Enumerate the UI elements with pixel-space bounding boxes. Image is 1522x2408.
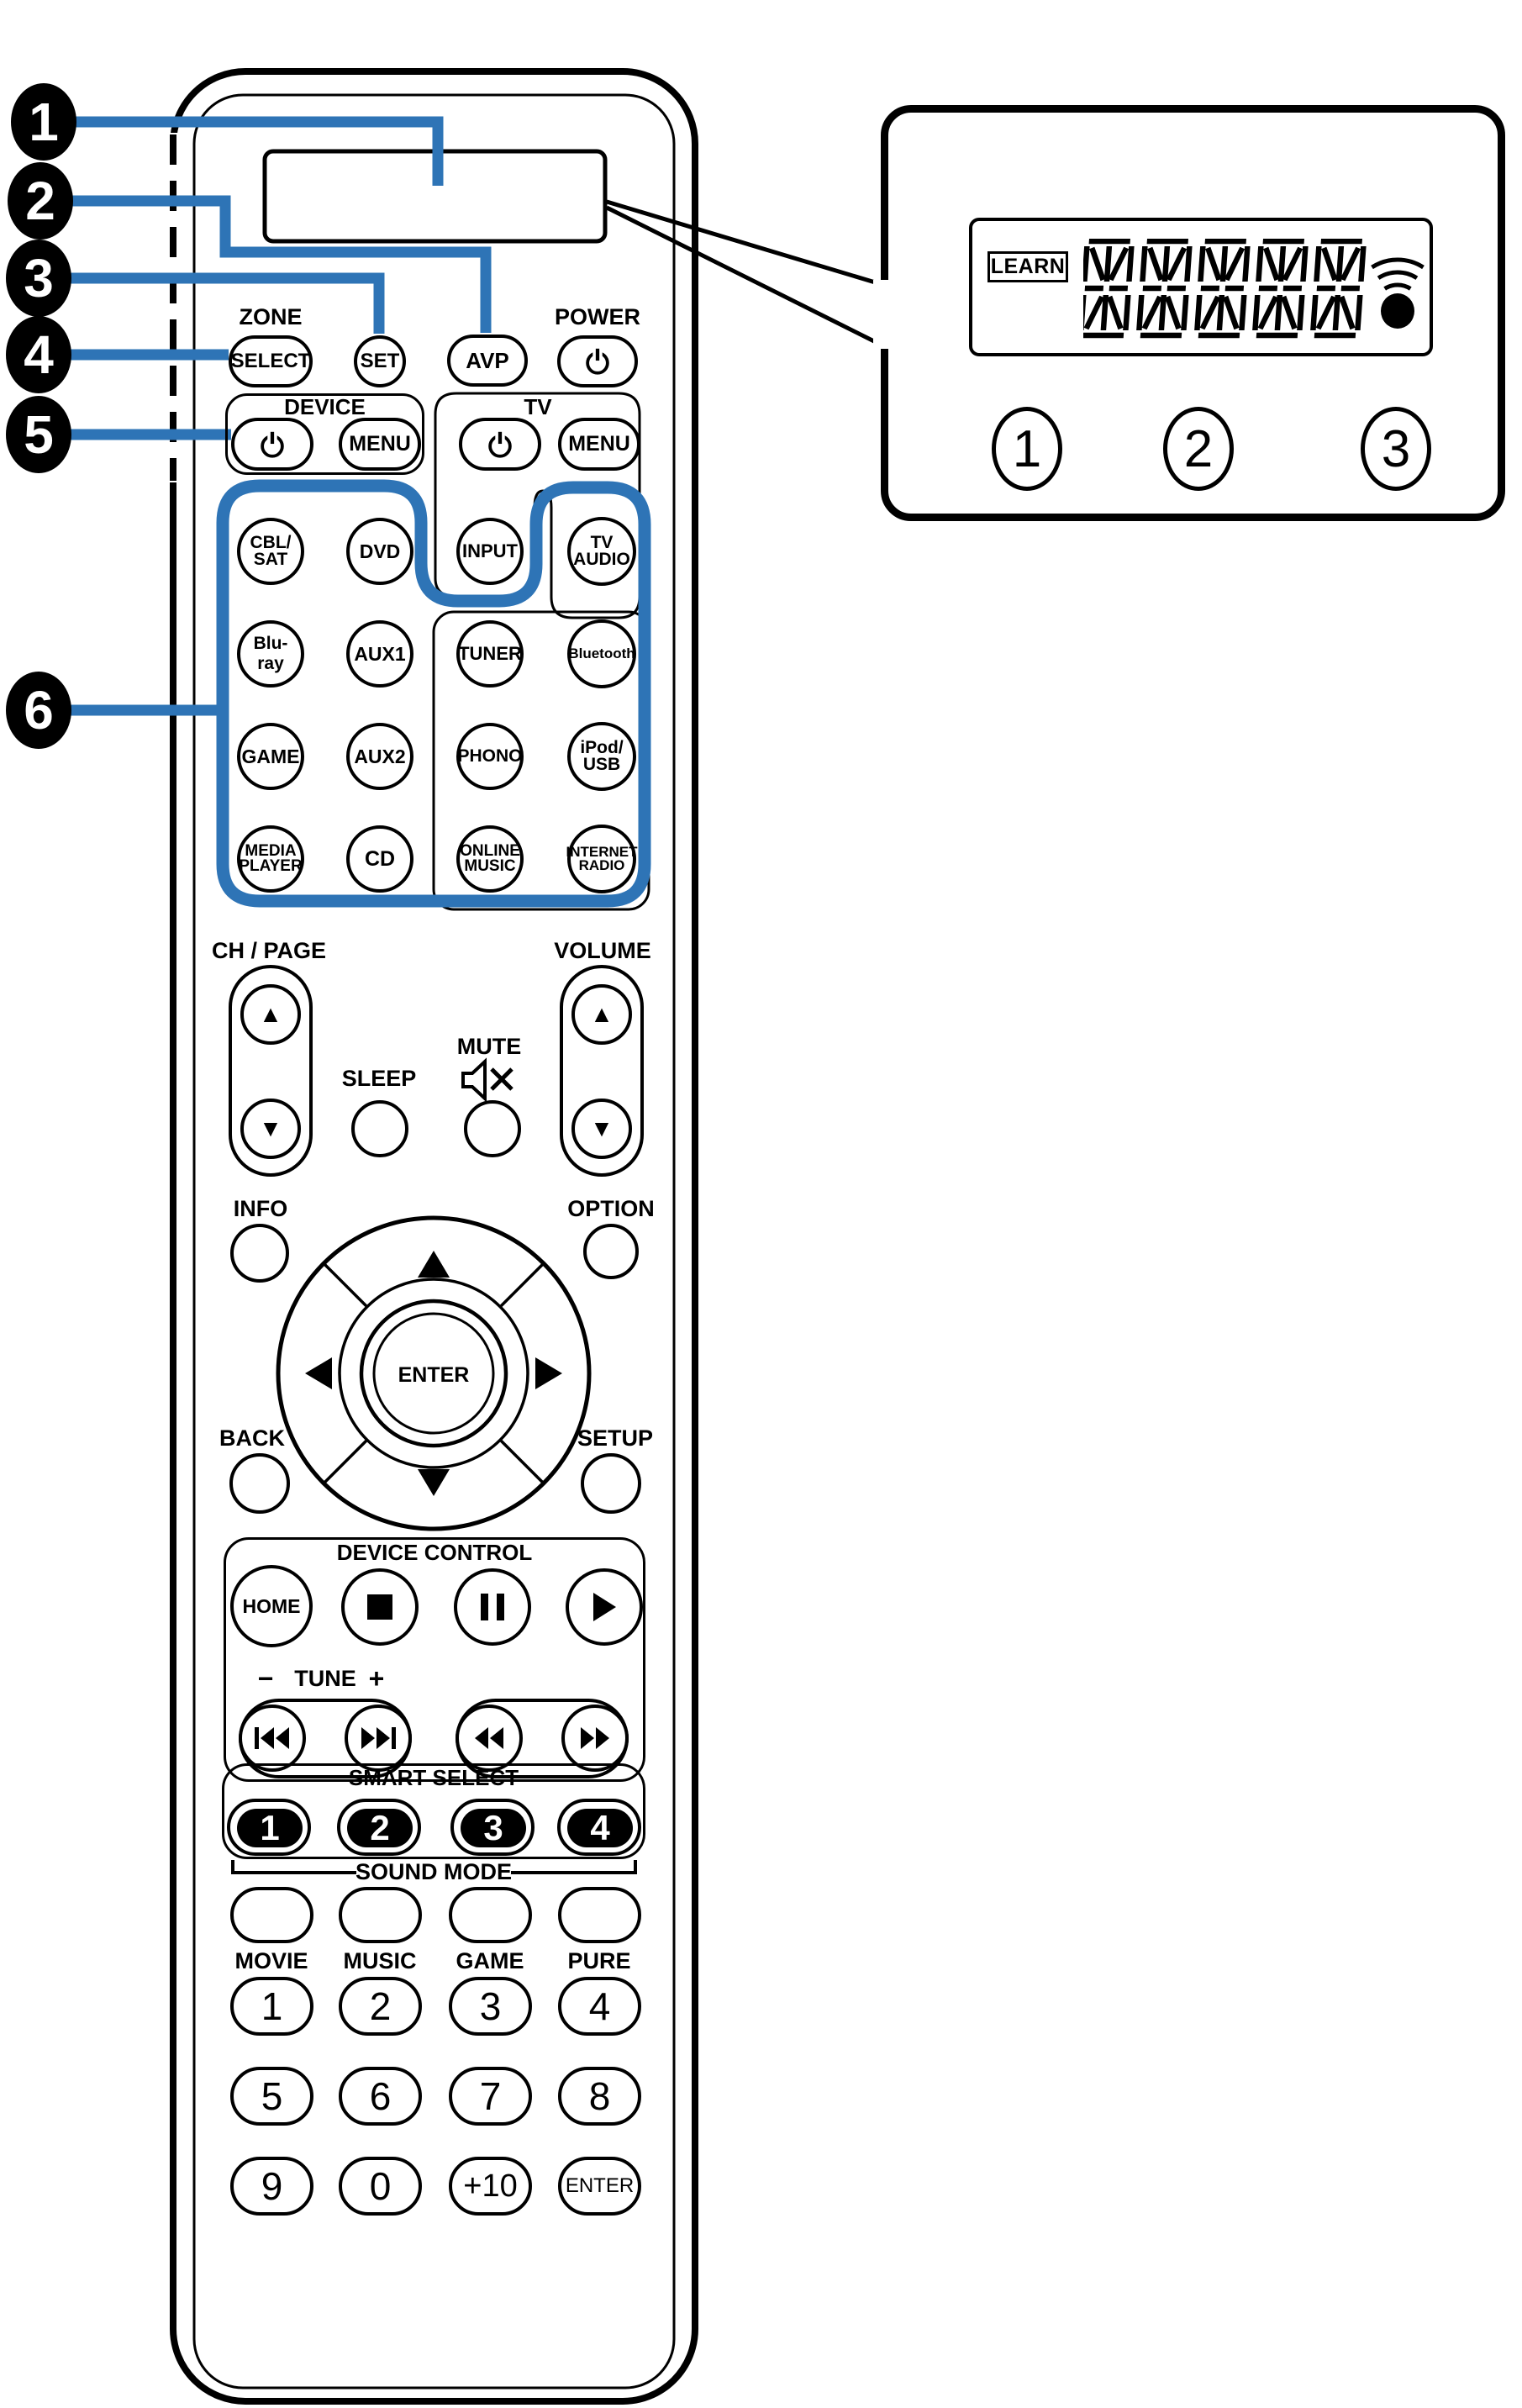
numpad-key-label: 2: [370, 1984, 392, 2029]
source-label: MEDIA PLAYER: [239, 844, 302, 874]
tv-input-button[interactable]: INPUT: [456, 518, 524, 585]
inset-callout-badge-2: 2: [1163, 407, 1234, 491]
smart-select-4-key: 4: [567, 1809, 633, 1847]
tv-menu-button[interactable]: MENU: [558, 418, 640, 471]
avp-label: AVP: [466, 348, 509, 374]
callout-badge-3: 3: [6, 240, 71, 317]
rewind-button[interactable]: [456, 1705, 523, 1772]
skip-forward-icon: [360, 1726, 397, 1750]
tune-label: TUNE: [283, 1666, 367, 1692]
movie-label: MOVIE: [221, 1948, 322, 1974]
pure-label: PURE: [549, 1948, 650, 1974]
power-icon: [256, 429, 288, 461]
callout-badge-5: 5: [6, 396, 71, 473]
smart-number: 1: [260, 1808, 279, 1848]
callout-number: 3: [24, 247, 54, 309]
callout-number: 2: [25, 170, 55, 232]
ch-page-label: CH / PAGE: [193, 938, 345, 964]
sound-mode-label: SOUND MODE: [350, 1859, 518, 1885]
source-dvd-button[interactable]: DVD: [346, 518, 413, 585]
zone-group-label: ZONE: [212, 304, 329, 330]
numpad-8-button[interactable]: 8: [558, 2067, 641, 2126]
up-arrow-icon: ▲: [259, 1001, 282, 1028]
source-label: INTERNET RADIO: [566, 846, 638, 872]
callout-badge-1: 1: [11, 83, 76, 161]
source-bluetooth-button[interactable]: Bluetooth: [567, 619, 636, 688]
play-icon: [592, 1592, 617, 1622]
pause-button[interactable]: [454, 1568, 531, 1646]
numpad-key-label: 7: [480, 2073, 502, 2119]
callout-badge-4: 4: [6, 316, 71, 393]
back-label: BACK: [202, 1425, 303, 1452]
source-label: TUNER: [458, 643, 522, 665]
volume-down-button[interactable]: ▼: [571, 1099, 632, 1159]
smart-number: 2: [370, 1808, 389, 1848]
source-label: TV AUDIO: [573, 535, 630, 567]
source-label: CD: [365, 847, 395, 872]
numpad-enter-button[interactable]: ENTER: [558, 2157, 641, 2216]
source-tuner-button[interactable]: TUNER: [456, 620, 524, 688]
numpad-7-button[interactable]: 7: [449, 2067, 532, 2126]
source-label: iPod/ USB: [580, 740, 623, 772]
source-cbl-sat-button[interactable]: CBL/ SAT: [237, 518, 304, 585]
mute-label: MUTE: [439, 1034, 540, 1060]
callout-number: 1: [1013, 419, 1041, 479]
signal-indicator-icon: [1367, 244, 1430, 333]
numpad-1-button[interactable]: 1: [230, 1977, 313, 2036]
tv-group-label: TV: [454, 394, 622, 420]
source-aux1-button[interactable]: AUX1: [346, 620, 413, 688]
callout-number: 5: [24, 403, 54, 466]
source-label: INPUT: [462, 540, 518, 562]
numpad-6-button[interactable]: 6: [339, 2067, 422, 2126]
down-arrow-icon: ▼: [590, 1115, 614, 1142]
sleep-label: SLEEP: [329, 1066, 429, 1092]
source-label: AUX1: [354, 643, 405, 666]
device-menu-label: MENU: [349, 432, 411, 456]
source-internet-radio-button[interactable]: INTERNET RADIO: [567, 825, 636, 893]
sound-mode-movie-button[interactable]: [230, 1887, 313, 1943]
tv-power-button[interactable]: [459, 418, 541, 471]
mute-button[interactable]: [464, 1100, 521, 1157]
tv-menu-label: MENU: [568, 432, 630, 456]
device-menu-button[interactable]: MENU: [339, 418, 421, 471]
sleep-button[interactable]: [351, 1100, 408, 1157]
inset-callout-badge-1: 1: [992, 407, 1062, 491]
info-button[interactable]: [230, 1224, 289, 1283]
callout-number: 2: [1184, 419, 1213, 479]
channel-up-button[interactable]: ▲: [240, 984, 301, 1045]
home-button[interactable]: HOME: [230, 1565, 313, 1647]
option-label: OPTION: [544, 1196, 678, 1222]
skip-back-button[interactable]: [239, 1705, 306, 1772]
remote-control-diagram: 1 2 3 4 5 6 ZONE POWER SELECT SET AVP DE…: [0, 0, 1522, 2408]
option-button[interactable]: [583, 1224, 639, 1279]
main-power-button[interactable]: [557, 335, 638, 387]
source-label: Blu-ray: [240, 634, 301, 674]
skip-back-icon: [254, 1726, 291, 1750]
source-label: GAME: [242, 746, 300, 768]
source-online-music-button[interactable]: ONLINE MUSIC: [456, 825, 524, 893]
numpad-key-label: 3: [480, 1984, 502, 2029]
callout-number: 6: [24, 679, 54, 741]
source-aux2-button[interactable]: AUX2: [346, 723, 413, 790]
numpad-key-label: 9: [261, 2163, 283, 2209]
device-control-label: DEVICE CONTROL: [224, 1540, 645, 1566]
enter-label[interactable]: ENTER: [383, 1363, 484, 1388]
learn-label: LEARN: [991, 255, 1066, 279]
power-icon: [484, 429, 516, 461]
play-button[interactable]: [566, 1568, 643, 1646]
numpad-4-button[interactable]: 4: [558, 1977, 641, 2036]
smart-select-3-key: 3: [461, 1809, 526, 1847]
rewind-icon: [473, 1726, 505, 1750]
numpad-key-label: 4: [589, 1984, 611, 2029]
source-ipod-usb-button[interactable]: iPod/ USB: [567, 722, 636, 791]
smart-select-1-key: 1: [237, 1809, 303, 1847]
source-label: DVD: [360, 540, 401, 563]
segment-display-characters: [1083, 239, 1377, 340]
device-group-label: DEVICE: [225, 394, 424, 420]
source-game-button[interactable]: GAME: [237, 723, 304, 790]
down-arrow-icon: ▼: [259, 1115, 282, 1142]
set-button[interactable]: SET: [354, 335, 406, 387]
setup-label: SETUP: [548, 1425, 682, 1452]
source-label: CBL/ SAT: [250, 535, 292, 567]
fast-forward-icon: [579, 1726, 611, 1750]
up-arrow-icon: ▲: [590, 1001, 614, 1028]
smart-number: 4: [590, 1808, 609, 1848]
home-label: HOME: [243, 1595, 301, 1618]
source-cd-button[interactable]: CD: [346, 825, 413, 893]
smart-select-1-button[interactable]: 1: [227, 1799, 311, 1856]
source-media-player-button[interactable]: MEDIA PLAYER: [237, 825, 304, 893]
numpad-2-button[interactable]: 2: [339, 1977, 422, 2036]
numpad-key-label: 1: [261, 1984, 283, 2029]
setup-button[interactable]: [581, 1453, 641, 1514]
numpad-key-label: +10: [463, 2168, 517, 2205]
smart-select-2-button[interactable]: 2: [337, 1799, 421, 1856]
smart-select-label: SMART SELECT: [222, 1765, 645, 1791]
tune-plus-label: +: [360, 1663, 393, 1694]
source-label: PHONO: [458, 746, 523, 767]
volume-label: VOLUME: [527, 938, 678, 964]
channel-down-button[interactable]: ▼: [240, 1099, 301, 1159]
fast-forward-button[interactable]: [561, 1705, 629, 1772]
source-label: ONLINE MUSIC: [460, 844, 520, 874]
callout-badge-2: 2: [8, 162, 73, 240]
numpad-9-button[interactable]: 9: [230, 2157, 313, 2216]
numpad-key-label: 5: [261, 2073, 283, 2119]
game-label: GAME: [440, 1948, 540, 1974]
numpad-key-label: 8: [589, 2073, 611, 2119]
callout-badge-6: 6: [6, 672, 71, 749]
numpad-key-label: 0: [370, 2163, 392, 2209]
avp-button[interactable]: AVP: [447, 335, 528, 387]
source-tv-audio-button[interactable]: TV AUDIO: [567, 517, 636, 586]
smart-select-3-button[interactable]: 3: [450, 1799, 535, 1856]
set-label: SET: [361, 350, 400, 373]
numpad-key-label: 6: [370, 2073, 392, 2119]
callout-number: 4: [24, 324, 54, 386]
numpad-5-button[interactable]: 5: [230, 2067, 313, 2126]
sound-mode-music-button[interactable]: [339, 1887, 422, 1943]
smart-select-2-key: 2: [347, 1809, 413, 1847]
stop-button[interactable]: [341, 1568, 419, 1646]
zone-select-label: SELECT: [231, 350, 311, 373]
zone-select-button[interactable]: SELECT: [229, 335, 313, 387]
stop-icon: [366, 1594, 393, 1620]
callout-number: 3: [1382, 419, 1410, 479]
power-icon: [582, 345, 614, 377]
numpad-enter-label: ENTER: [566, 2174, 634, 2198]
numpad-3-button[interactable]: 3: [449, 1977, 532, 2036]
info-label: INFO: [210, 1196, 311, 1222]
back-button[interactable]: [229, 1453, 290, 1514]
tune-minus-label: −: [249, 1663, 282, 1694]
callout-number: 1: [29, 91, 59, 153]
sound-mode-pure-button[interactable]: [558, 1887, 641, 1943]
numpad-plus10-button[interactable]: +10: [449, 2157, 532, 2216]
source-label: Bluetooth: [568, 645, 635, 662]
music-label: MUSIC: [329, 1948, 430, 1974]
volume-up-button[interactable]: ▲: [571, 984, 632, 1045]
source-label: AUX2: [354, 746, 405, 768]
inset-border-notch: [873, 280, 890, 349]
skip-forward-button[interactable]: [345, 1705, 412, 1772]
smart-number: 3: [483, 1808, 503, 1848]
learn-indicator: LEARN: [987, 251, 1068, 282]
sound-mode-game-button[interactable]: [449, 1887, 532, 1943]
source-blu-ray-button[interactable]: Blu-ray: [237, 620, 304, 688]
inset-callout-badge-3: 3: [1361, 407, 1431, 491]
device-power-button[interactable]: [231, 418, 313, 471]
pause-icon: [480, 1593, 505, 1621]
power-label: POWER: [539, 304, 656, 330]
source-phono-button[interactable]: PHONO: [456, 723, 524, 790]
smart-select-4-button[interactable]: 4: [557, 1799, 641, 1856]
numpad-0-button[interactable]: 0: [339, 2157, 422, 2216]
